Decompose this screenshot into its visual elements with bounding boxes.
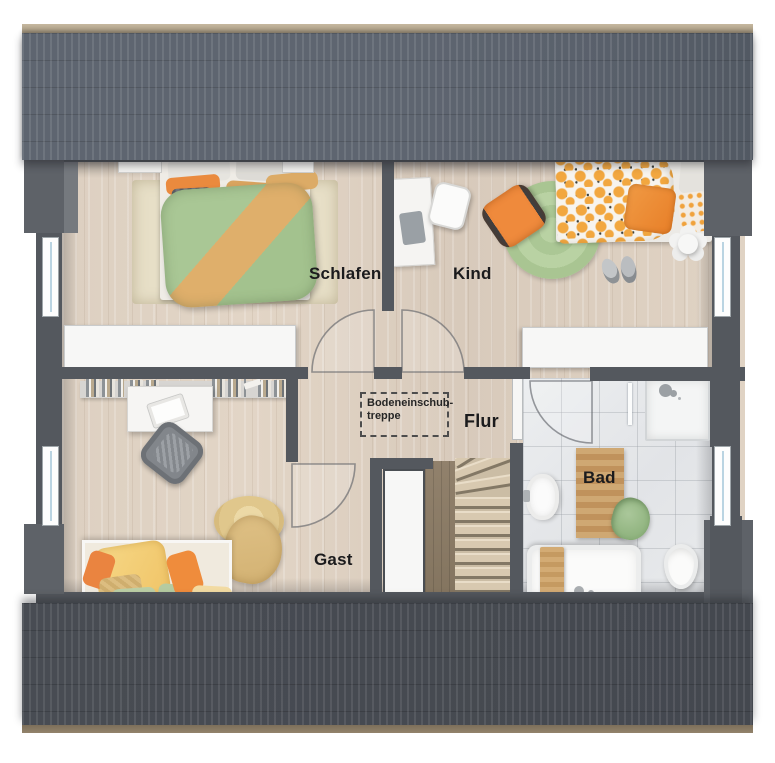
gable-block [24,524,64,594]
room-label-gast: Gast [314,550,353,570]
wall-schlafen-kind [382,152,394,311]
roof-bottom-band [22,603,753,733]
attic-hatch-annotation: Bodeneinschub- treppe [360,392,449,437]
room-label-schlafen: Schlafen [309,264,381,284]
window-right-top [714,237,731,317]
gable-block [704,158,752,236]
roof-top-band [22,24,753,160]
room-label-bad: Bad [583,468,616,488]
room-label-kind: Kind [453,264,492,284]
window-right-bottom [714,446,731,526]
attic-hatch-line1: Bodeneinschub- [367,397,453,409]
window-left-bottom [42,446,59,526]
room-label-flur: Flur [464,411,499,432]
window-left-top [42,237,59,317]
wall-stair-head [370,458,433,469]
wall-schlafen-flur [36,367,308,379]
wall-gast-stairs [370,458,382,604]
door-arc-gast [292,464,355,527]
door-arc-schlafen [312,310,374,372]
floor-plan: Schlafen Kind Flur Gast Bad Bodeneinschu… [0,0,775,763]
wall-kind-flur [464,367,530,379]
wall-flur-bad [510,443,523,604]
gable-block [24,158,64,233]
wall-shower-side [710,367,740,447]
door-arc-kind [402,310,464,372]
wall-door-pier [374,367,402,379]
wall-gast-flur [286,367,298,462]
wall-bad-right-block [710,516,742,608]
door-arc-bad [530,381,592,443]
attic-hatch-line2: treppe [367,410,401,422]
